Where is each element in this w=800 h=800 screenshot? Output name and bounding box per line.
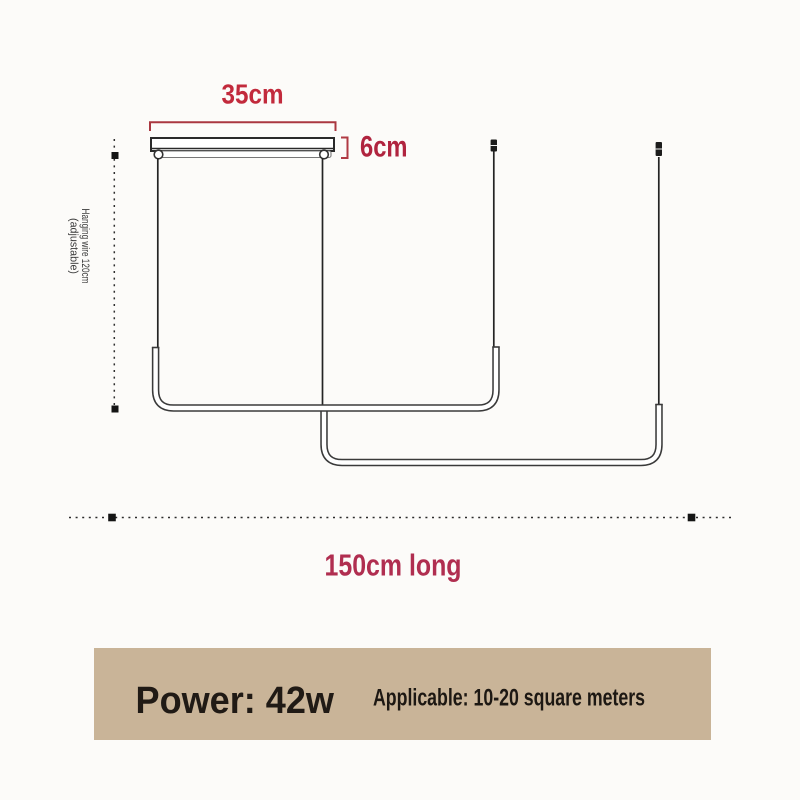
svg-text:35cm: 35cm <box>222 78 284 109</box>
svg-text:150cm long: 150cm long <box>325 549 462 583</box>
svg-text:Applicable: 10-20 square meter: Applicable: 10-20 square meters <box>373 685 645 712</box>
svg-text:(adjustable): (adjustable) <box>68 218 80 274</box>
svg-text:6cm: 6cm <box>360 131 408 164</box>
svg-text:Power: 42w: Power: 42w <box>136 680 335 722</box>
svg-text:Hanging wire 120cm: Hanging wire 120cm <box>79 209 91 284</box>
